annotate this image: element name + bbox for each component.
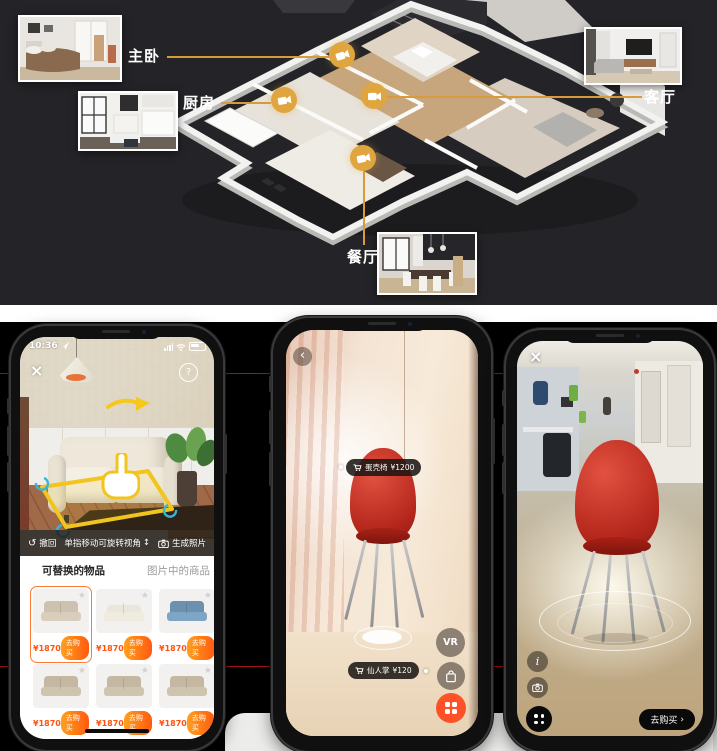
hanging-cord	[404, 330, 405, 480]
item-price-tag[interactable]: 蛋壳椅 ¥1200	[346, 459, 421, 476]
close-icon[interactable]: ×	[30, 361, 43, 380]
label-dining-room: 餐厅	[347, 248, 379, 266]
wifi-icon	[176, 343, 186, 351]
ar-toolbar: ↺ 撤回 单指移动可旋转视角 ↕ 生成照片	[20, 530, 214, 556]
battery-icon	[189, 342, 206, 351]
sofa-thumbnail	[167, 676, 207, 700]
person	[533, 381, 548, 405]
tag-anchor-dot	[339, 465, 343, 469]
volume-down-button	[7, 462, 10, 492]
volume-up-button	[269, 410, 272, 444]
product-tabs: 可替换的物品 图片中的商品	[20, 556, 214, 584]
gesture-hint: 单指移动可旋转视角 ↕	[64, 537, 150, 549]
shopping-bag-button[interactable]	[437, 662, 465, 690]
menu-dots-button[interactable]	[526, 706, 552, 732]
power-button	[492, 418, 495, 464]
favorite-star-icon[interactable]: ★	[78, 666, 86, 676]
floor-item-price: ¥120	[393, 666, 412, 675]
product-card[interactable]: ★ ¥1870 去购买	[96, 589, 152, 660]
close-icon[interactable]: ×	[529, 347, 542, 366]
camera-marker-living-room[interactable]	[361, 83, 387, 109]
signal-icon	[164, 343, 173, 351]
product-card[interactable]: ★ ¥1870 去购买	[33, 664, 89, 735]
mute-switch	[502, 390, 505, 406]
desk	[523, 427, 573, 432]
info-button[interactable]: i	[527, 651, 548, 672]
notch	[336, 318, 428, 331]
floor-item-name: 仙人掌	[367, 665, 390, 676]
leader-kitchen	[221, 102, 271, 104]
sofa-thumbnail	[167, 601, 207, 625]
floor-item-tag[interactable]: 仙人掌 ¥120	[348, 662, 419, 679]
placement-ring-inner	[557, 603, 673, 643]
buy-button[interactable]: 去购买	[187, 711, 214, 735]
phone-2: ‹ 蛋壳椅 ¥1200	[273, 318, 491, 751]
undo-button[interactable]: ↺ 撤回	[28, 537, 56, 549]
camera-icon	[158, 539, 169, 548]
clock: 10:36	[29, 341, 58, 351]
thumbnail-dining-room	[377, 232, 477, 295]
product-card[interactable]: ★ ¥1870 去购买	[159, 664, 214, 735]
camera-marker-kitchen[interactable]	[271, 87, 297, 113]
generate-photo-label: 生成照片	[172, 537, 206, 549]
more-products-button[interactable]	[436, 693, 466, 723]
label-kitchen: 厨房	[183, 94, 215, 112]
green-bin	[579, 411, 586, 423]
videocam-icon	[333, 47, 351, 64]
phone-3-screen: × i	[517, 341, 703, 736]
phone-3: × i	[506, 330, 714, 751]
favorite-star-icon[interactable]: ★	[204, 591, 212, 601]
product-price: ¥1870	[159, 719, 187, 728]
door	[641, 371, 661, 443]
product-price: ¥1870	[159, 644, 187, 653]
product-card[interactable]: ★ ¥1870 去购买	[159, 589, 214, 660]
tab-items-in-photo[interactable]: 图片中的商品	[147, 563, 210, 578]
green-bin	[569, 385, 578, 401]
volume-down-button	[502, 462, 505, 494]
go-buy-label: 去购买	[650, 713, 677, 726]
hand-gesture-icon	[100, 453, 140, 501]
vr-label: VR	[443, 637, 458, 648]
generate-photo-button[interactable]: 生成照片	[158, 537, 206, 549]
favorite-star-icon[interactable]: ★	[141, 591, 149, 601]
product-price: ¥1870	[96, 719, 124, 728]
cart-icon	[353, 464, 362, 472]
leader-living-room	[387, 96, 642, 98]
status-bar: 10:36	[20, 340, 214, 352]
buy-button[interactable]: 去购买	[124, 636, 152, 660]
product-price: ¥1870	[33, 644, 61, 653]
camera-marker-dining-room[interactable]	[350, 145, 376, 171]
favorite-star-icon[interactable]: ★	[78, 591, 86, 601]
volume-up-button	[7, 426, 10, 456]
videocam-icon	[354, 150, 371, 166]
mute-switch	[7, 398, 10, 414]
placement-spot	[362, 630, 402, 644]
phone-1-screen: 10:36 × ? ↺	[20, 337, 214, 739]
sofa-thumbnail	[41, 601, 81, 625]
go-buy-button[interactable]: 去购买 ›	[639, 709, 695, 730]
shopping-bag-icon	[445, 670, 457, 683]
phone-1: 10:36 × ? ↺	[11, 326, 223, 750]
vr-button[interactable]: VR	[436, 628, 465, 657]
product-price: ¥1870	[96, 644, 124, 653]
mute-switch	[269, 376, 272, 392]
favorite-star-icon[interactable]: ★	[141, 666, 149, 676]
leader-master-bedroom	[167, 56, 330, 58]
grid-icon	[445, 702, 457, 714]
back-button[interactable]: ‹	[293, 347, 312, 366]
power-button	[224, 434, 227, 474]
hint-arrows-icon: ↕	[143, 538, 150, 548]
home-indicator[interactable]	[85, 729, 149, 733]
notch	[564, 330, 656, 343]
tab-replaceable-items[interactable]: 可替换的物品	[42, 563, 105, 578]
label-master-bedroom: 主卧	[128, 47, 160, 65]
sofa-thumbnail	[104, 676, 144, 700]
camera-button[interactable]	[527, 677, 548, 698]
curtain	[286, 330, 344, 660]
product-price: ¥1870	[33, 719, 61, 728]
product-card[interactable]: ★ ¥1870 去购买	[33, 589, 89, 660]
floorplan-section: 主卧 厨房 客厅 餐厅	[0, 0, 717, 305]
camera-marker-master-bedroom[interactable]	[329, 42, 355, 68]
info-label: i	[536, 655, 540, 668]
location-arrow-icon	[61, 342, 69, 350]
favorite-star-icon[interactable]: ★	[204, 666, 212, 676]
cart-icon	[355, 667, 364, 675]
volume-down-button	[269, 452, 272, 486]
right-wall-edge	[468, 330, 478, 736]
tag-anchor-dot	[424, 669, 428, 673]
item-name: 蛋壳椅	[365, 462, 388, 473]
door	[667, 365, 691, 447]
buy-button[interactable]: 去购买	[187, 636, 214, 660]
volume-up-button	[502, 424, 505, 456]
help-icon[interactable]: ?	[179, 363, 198, 382]
office-chair	[543, 433, 571, 477]
chevron-right-icon: ›	[680, 715, 684, 725]
dots-grid-icon	[534, 714, 544, 724]
undo-icon: ↺	[28, 538, 36, 549]
thumbnail-living-room	[584, 27, 682, 85]
thumbnail-kitchen	[78, 91, 178, 151]
camera-icon	[532, 683, 543, 692]
label-living-room: 客厅	[644, 88, 676, 106]
buy-button[interactable]: 去购买	[61, 636, 89, 660]
videocam-icon	[367, 90, 382, 103]
red-sign	[634, 369, 639, 374]
thumbnail-master-bedroom	[18, 15, 122, 82]
product-panel: 可替换的物品 图片中的商品 ★ ¥1870 去购买 ★ ¥1870 去购买	[20, 556, 214, 739]
sofa-thumbnail	[41, 676, 81, 700]
product-card[interactable]: ★ ¥1870 去购买	[96, 664, 152, 735]
hint-label: 单指移动可旋转视角	[64, 537, 141, 549]
videocam-icon	[275, 92, 292, 107]
item-price: ¥1200	[391, 463, 415, 472]
distant-person	[603, 397, 611, 415]
phone-2-screen: ‹ 蛋壳椅 ¥1200	[286, 330, 478, 736]
page: 主卧 厨房 客厅 餐厅	[0, 0, 717, 751]
leader-dining-room	[363, 171, 365, 245]
notch	[70, 326, 162, 339]
undo-label: 撤回	[39, 537, 56, 549]
sofa-thumbnail	[104, 601, 144, 625]
